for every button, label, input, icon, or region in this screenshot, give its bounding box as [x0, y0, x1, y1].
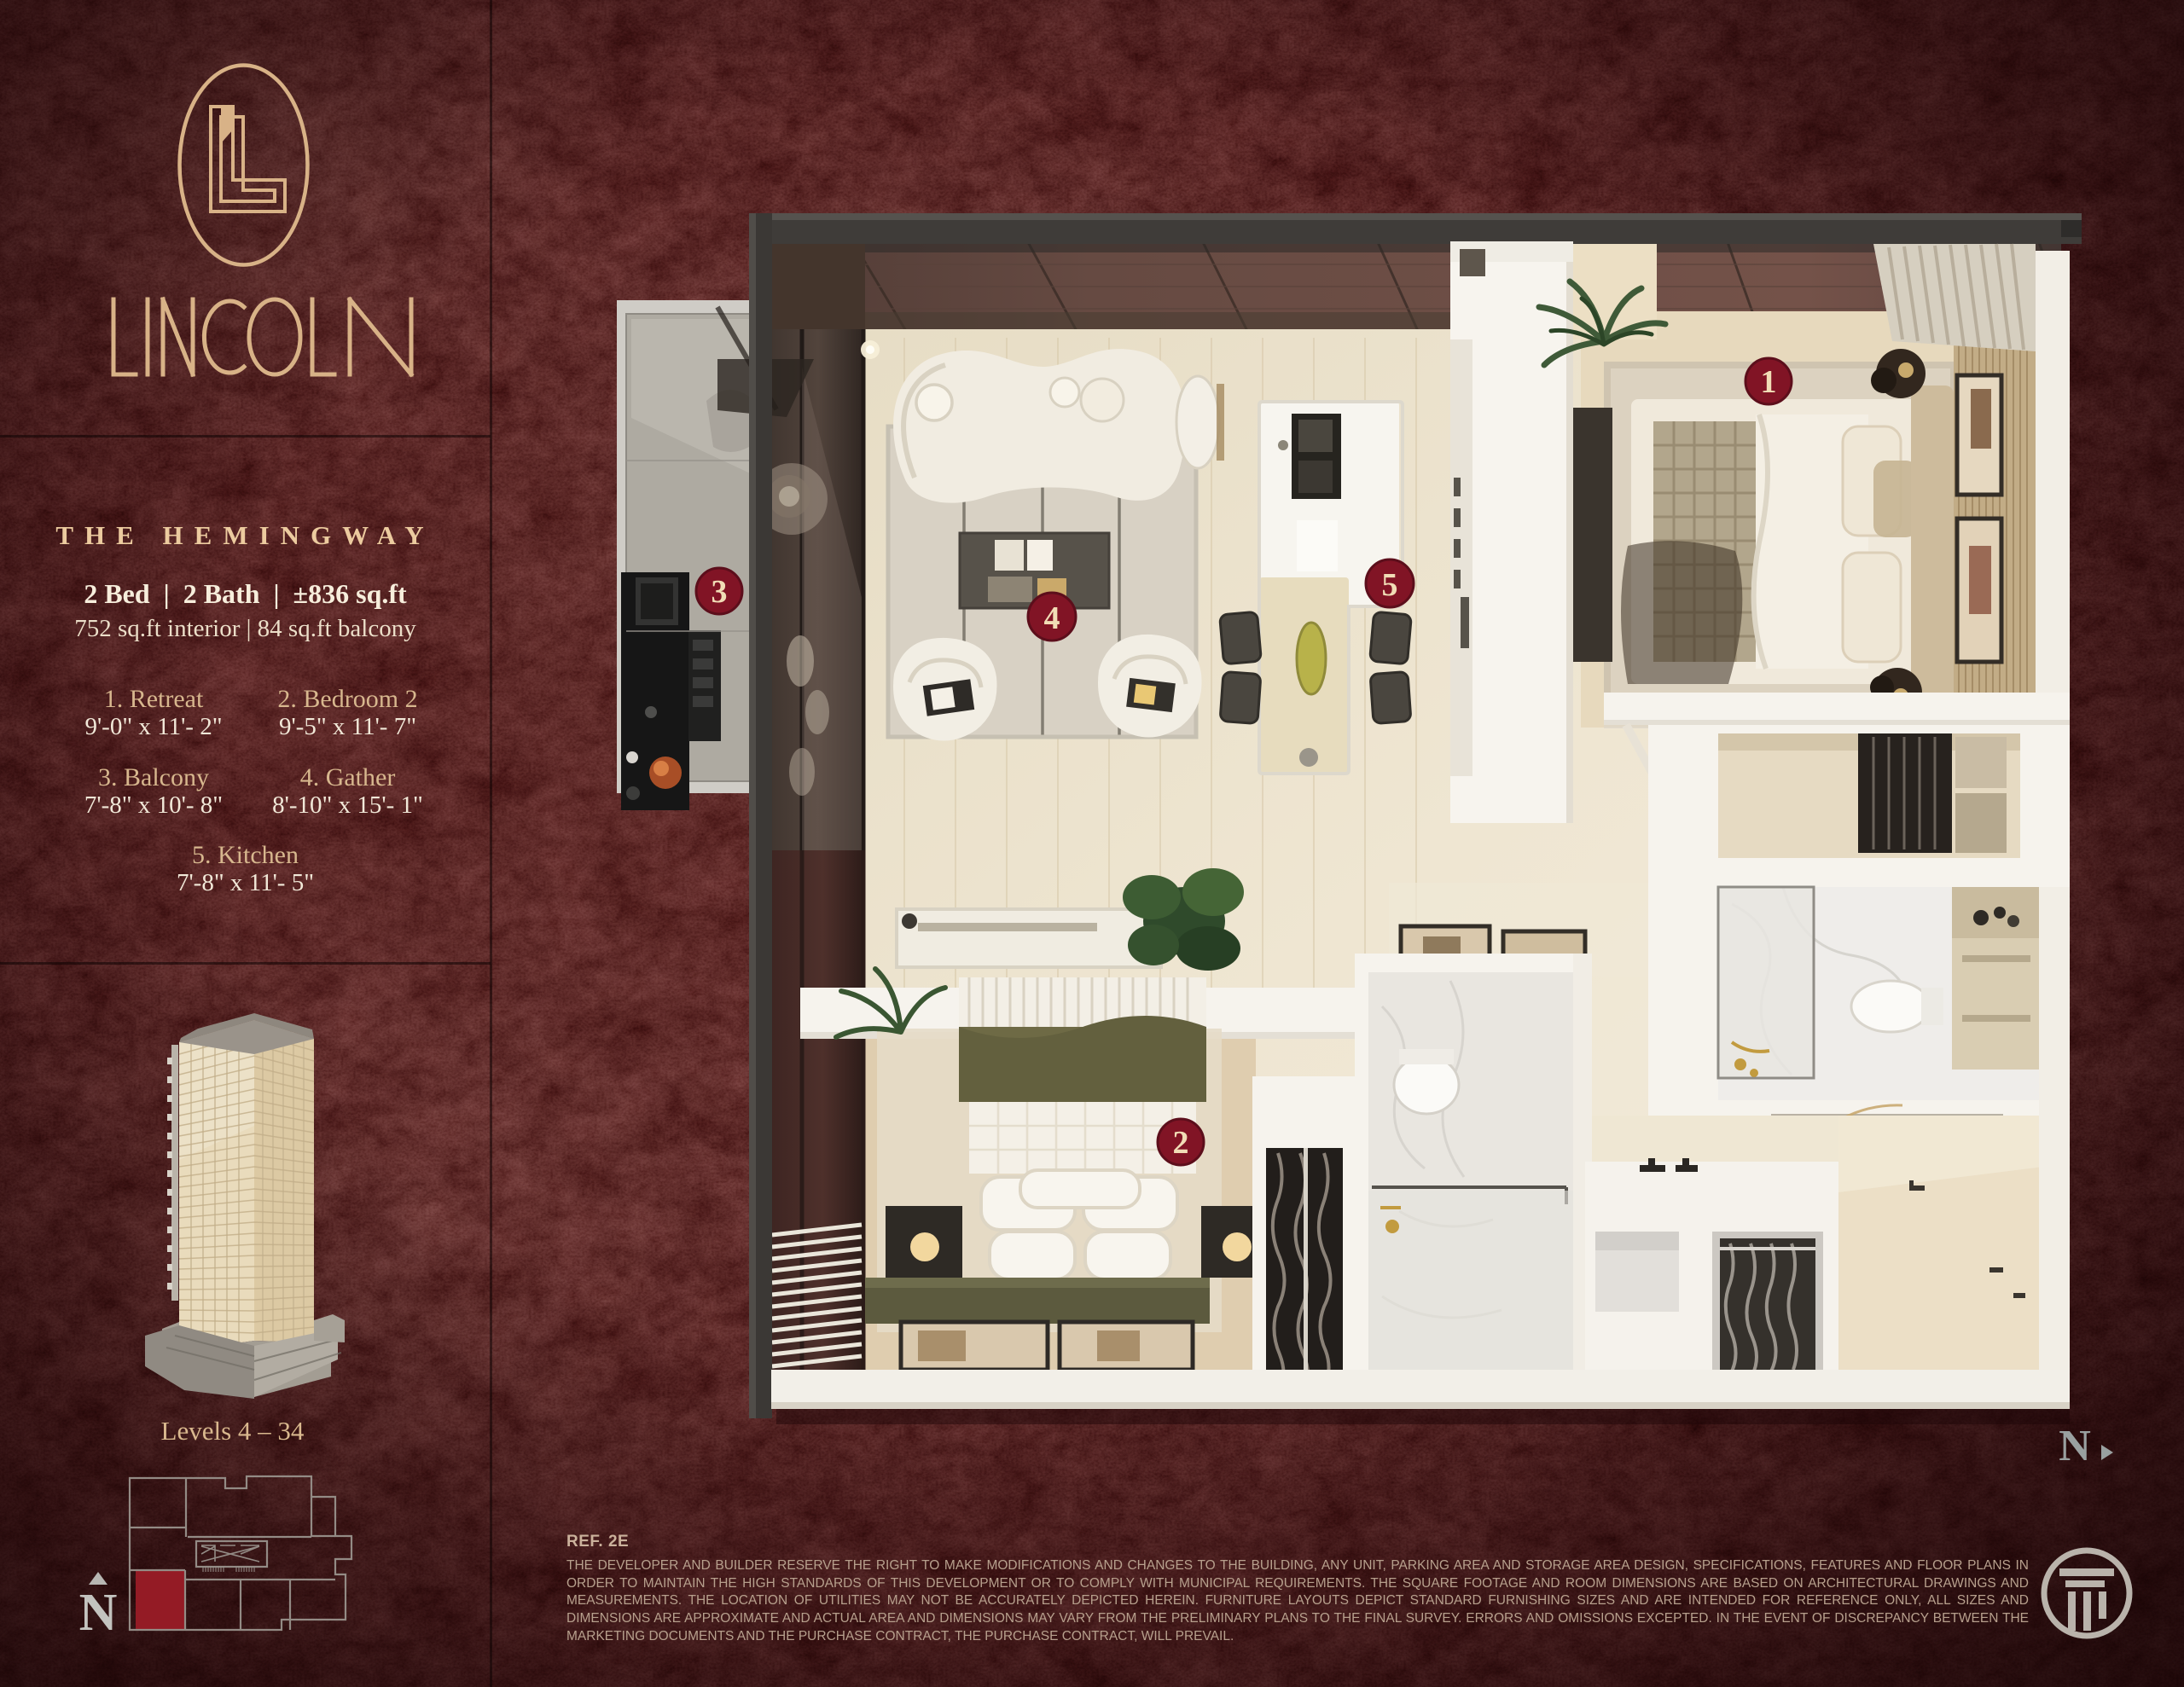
svg-text:3: 3: [712, 574, 728, 610]
svg-text:2: 2: [1173, 1125, 1189, 1161]
svg-text:5: 5: [1382, 567, 1398, 603]
svg-text:N: N: [2059, 1422, 2091, 1470]
svg-text:4: 4: [1044, 600, 1060, 636]
svg-text:1: 1: [1761, 364, 1777, 400]
svg-text:N: N: [79, 1584, 118, 1642]
